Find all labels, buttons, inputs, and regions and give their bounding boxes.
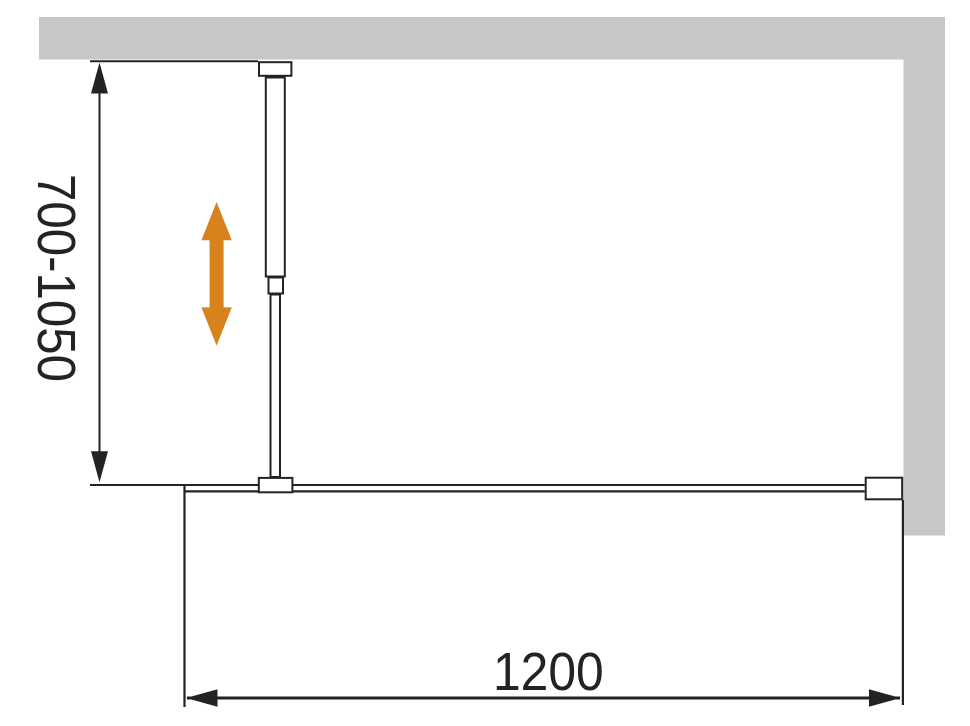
svg-text:700-1050: 700-1050 <box>26 174 85 382</box>
svg-text:1200: 1200 <box>493 643 604 702</box>
